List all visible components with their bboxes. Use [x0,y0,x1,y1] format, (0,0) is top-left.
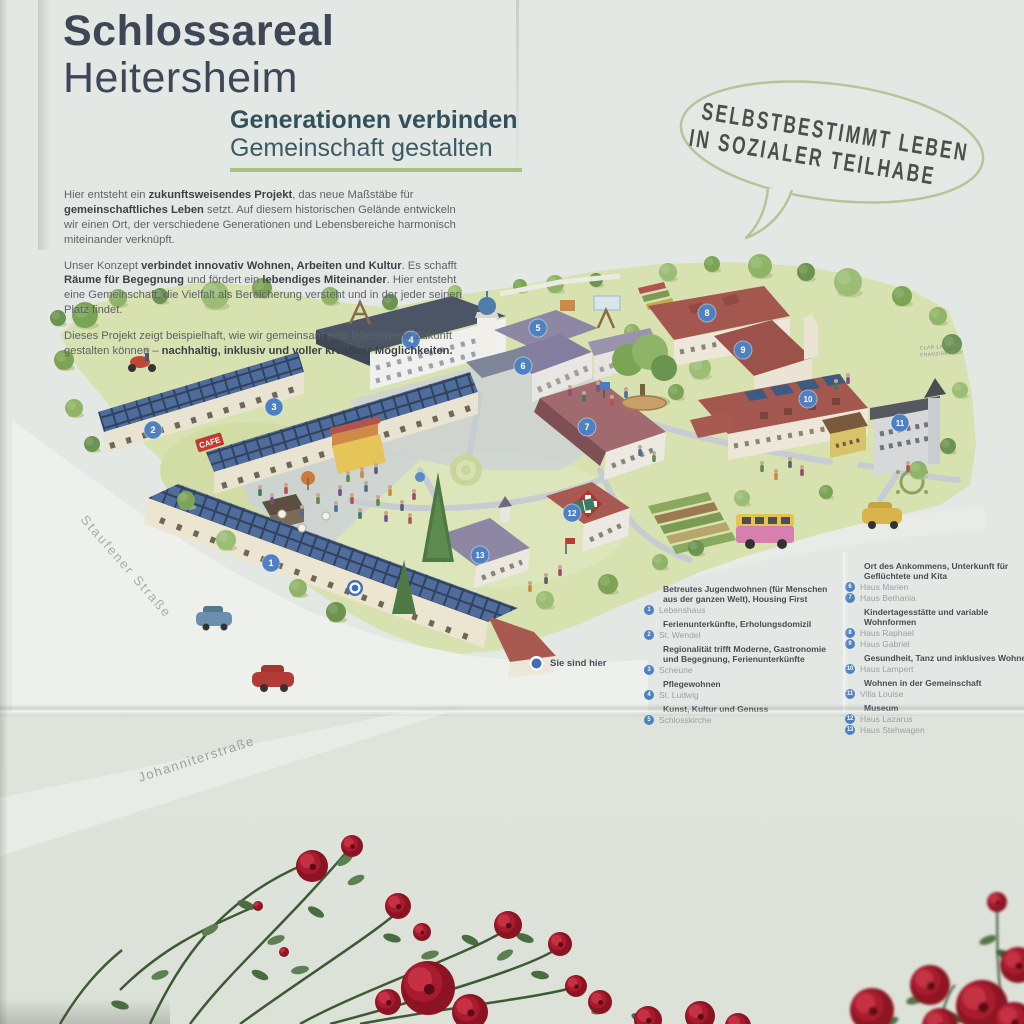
rose-flowers-left [253,835,662,1024]
foreground-roses [0,0,1024,1024]
rose-flowers-center [685,1001,751,1024]
banner-photo: Johanniterstraße Staufener Straße [0,0,1024,1024]
